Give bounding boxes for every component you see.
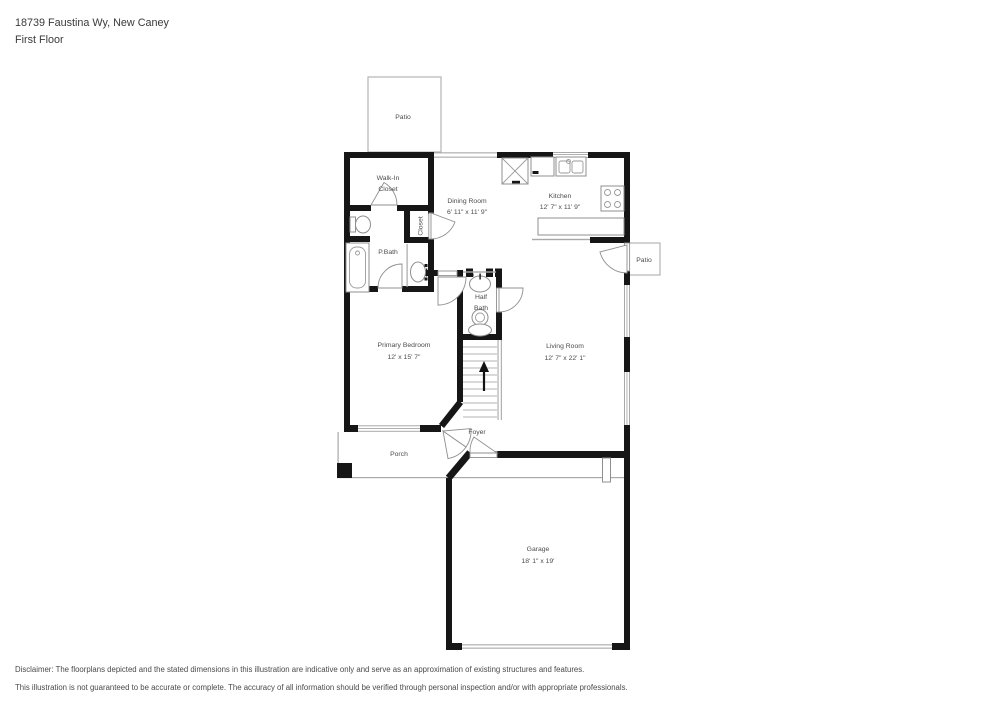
porch-label: Porch: [390, 451, 408, 458]
patio-right-label: Patio: [636, 257, 652, 264]
foyer-angled-wall: [442, 402, 461, 426]
primary-bath-door: [378, 264, 402, 288]
refrigerator-icon: [531, 157, 554, 176]
half-bath-label-line1: Half: [475, 294, 487, 301]
living-room-window-upper: [624, 285, 630, 337]
half-bath-label-line2: Bath: [474, 305, 488, 312]
primary-bedroom-label: Primary Bedroom: [378, 342, 431, 349]
kitchen-dims: 12' 7" x 11' 9": [540, 204, 581, 211]
garage-door-opening: [462, 644, 612, 648]
patio-slider-window: [434, 152, 497, 157]
garage-dims: 18' 1" x 19': [522, 558, 555, 565]
stairs-up-arrow-icon: [479, 361, 489, 391]
primary-bedroom-dims: 12' x 15' 7": [388, 354, 422, 361]
patio-top-label: Patio: [395, 114, 411, 121]
walk-in-closet-label-line2: Closet: [378, 186, 397, 193]
disclaimer-line2: This illustration is not guaranteed to b…: [15, 679, 628, 697]
hall-closet-label: Closet: [418, 216, 425, 235]
pantry-icon: [502, 158, 528, 184]
water-heater-icon: [603, 458, 611, 482]
disclaimer: Disclaimer: The floorplans depicted and …: [15, 661, 628, 697]
half-bath-toilet-icon: [469, 310, 492, 337]
living-room-dims: 12' 7" x 22' 1": [544, 355, 586, 362]
porch-post: [337, 463, 352, 478]
disclaimer-line1: Disclaimer: The floorplans depicted and …: [15, 661, 628, 679]
dining-room-dims: 6' 11" x 11' 9": [447, 209, 488, 216]
kitchen-label: Kitchen: [549, 193, 572, 200]
hall-closet-door: [429, 213, 455, 239]
floor-plan-drawing: Patio Walk-In Closet Dining Room 6' 11" …: [0, 0, 1000, 707]
garage-entry-door: [470, 437, 497, 458]
half-bath-door: [497, 288, 524, 312]
bathtub-icon: [346, 243, 369, 292]
primary-bath-label: P.Bath: [378, 249, 398, 256]
stairs: [463, 340, 502, 420]
floorplan-page: 18739 Faustina Wy, New Caney First Floor: [0, 0, 1000, 707]
garage-label: Garage: [527, 546, 550, 553]
walk-in-closet-label-line1: Walk-In: [377, 175, 400, 182]
patio-door: [600, 243, 630, 273]
living-room-label: Living Room: [546, 343, 584, 350]
kitchen-counter: [532, 218, 624, 240]
kitchen-sink-icon: [556, 157, 586, 176]
primary-bath-toilet-icon: [350, 216, 371, 233]
stove-icon: [601, 186, 624, 211]
bedroom-window: [358, 425, 420, 432]
primary-bath-sink-icon: [407, 244, 428, 287]
living-room-window-lower: [624, 372, 630, 425]
half-bath-sink-icon: [470, 274, 491, 293]
foyer-label: Foyer: [468, 429, 486, 436]
dining-room-label: Dining Room: [447, 198, 487, 205]
